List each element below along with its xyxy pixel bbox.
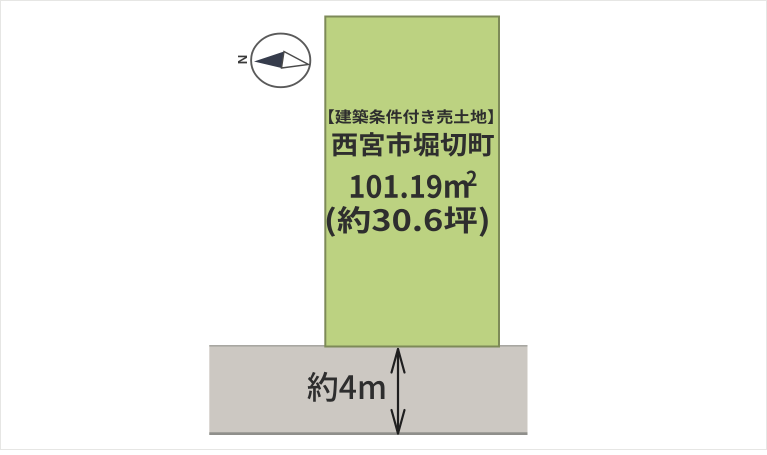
svg-text:N: N: [235, 55, 250, 65]
